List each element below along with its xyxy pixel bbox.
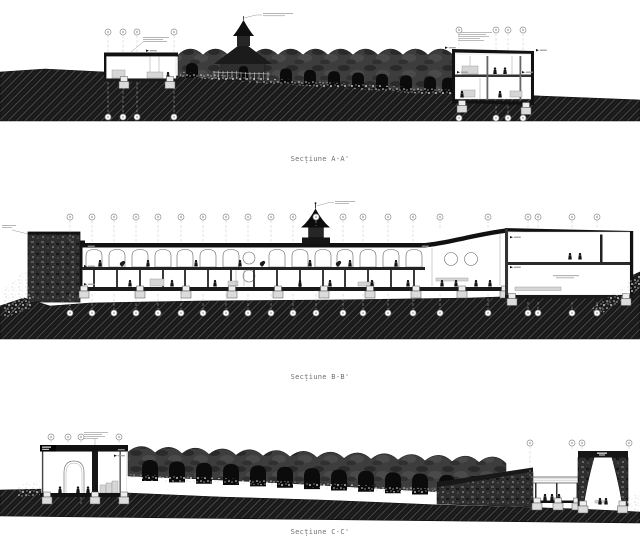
annotation-block — [458, 32, 492, 41]
section-a-caption: Secțiune A-A' — [0, 155, 640, 163]
spire-annotation — [244, 13, 293, 18]
bell-tower — [301, 201, 355, 244]
section-b-caption: Secțiune B-B' — [0, 373, 640, 381]
vegetation-left-c — [18, 481, 40, 497]
section-c-caption: Secțiune C-C' — [0, 528, 640, 536]
section-cut-a-left — [104, 37, 178, 89]
section-b-drawing — [0, 170, 640, 385]
section-c-drawing — [0, 385, 640, 544]
spire-annotation — [317, 201, 356, 206]
annotation-block — [131, 37, 169, 52]
drawing-sheet: Secțiune A-A' Secțiune B-B' Secțiune C-C… — [0, 0, 640, 544]
section-cut-c-left — [40, 432, 129, 504]
annotation-block — [84, 432, 108, 445]
section-cut-c-middle — [531, 477, 582, 510]
arcade-building — [79, 229, 510, 299]
section-a-drawing — [0, 0, 640, 170]
stone-gate — [578, 451, 628, 513]
